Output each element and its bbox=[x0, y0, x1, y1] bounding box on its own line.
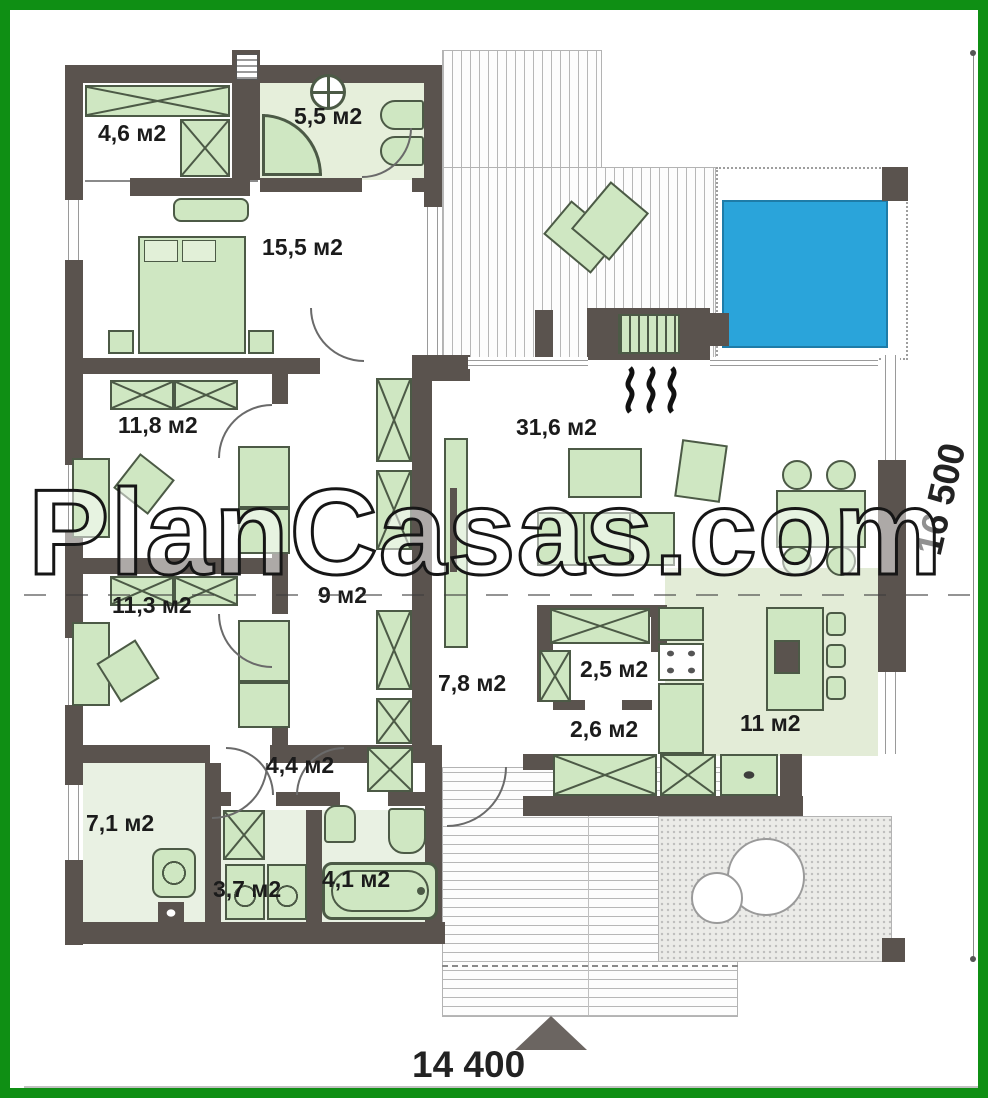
hall-closet bbox=[376, 698, 412, 744]
glazing-terrace bbox=[710, 357, 878, 369]
heat-waves-icon bbox=[620, 366, 682, 414]
kitchen-lower-cabinet bbox=[660, 754, 716, 796]
wall-laundry-east bbox=[306, 810, 322, 922]
window bbox=[424, 207, 442, 355]
bathtub-drain bbox=[417, 887, 425, 895]
nightstand bbox=[108, 330, 134, 354]
dimension-line-horizontal bbox=[24, 1086, 984, 1088]
wall-counter-pier bbox=[780, 754, 802, 796]
pool-pillar bbox=[882, 167, 908, 201]
toilet-icon bbox=[380, 100, 424, 130]
door-arc bbox=[218, 404, 272, 458]
room-label-bedroom-2: 11,8 м2 bbox=[118, 414, 198, 437]
room-label-living-room: 31,6 м2 bbox=[516, 416, 597, 439]
door-arc bbox=[218, 614, 272, 668]
wall-entry-north bbox=[65, 745, 210, 763]
toilet-icon bbox=[388, 808, 426, 854]
window bbox=[65, 785, 83, 860]
wall-corridor-west bbox=[272, 374, 288, 404]
vanity-stool bbox=[173, 198, 249, 222]
wall-bath-top-south bbox=[260, 178, 362, 192]
sink-icon bbox=[324, 805, 356, 843]
stove-icon bbox=[658, 643, 704, 681]
hall-closet bbox=[376, 378, 412, 462]
room-label-kitchen: 11 м2 bbox=[740, 712, 801, 735]
pillow bbox=[182, 240, 216, 262]
room-label-bathroom-bottom: 4,1 м2 bbox=[322, 868, 390, 891]
dimension-end-dot bbox=[970, 956, 976, 962]
window bbox=[882, 355, 900, 460]
glazing-terrace bbox=[468, 357, 588, 369]
patio-pillar bbox=[882, 938, 905, 962]
watermark: PlanCasas.com bbox=[28, 462, 980, 602]
tree-icon bbox=[691, 872, 743, 924]
kitchen-counter bbox=[658, 607, 704, 641]
vent-shaft-icon bbox=[236, 54, 258, 80]
water-heater-icon bbox=[152, 848, 196, 898]
corner-sofa bbox=[238, 682, 290, 728]
entry-closet bbox=[367, 747, 413, 792]
utility-floor bbox=[83, 763, 205, 922]
hall-closet bbox=[376, 610, 412, 690]
wall-corner-connector bbox=[412, 355, 470, 381]
wall-south bbox=[65, 922, 445, 944]
bar-stool bbox=[826, 644, 846, 668]
room-label-entry-hall: 4,4 м2 bbox=[266, 754, 334, 777]
window bbox=[882, 672, 900, 754]
laundry-closet bbox=[223, 810, 265, 860]
wall-topblock-east bbox=[424, 65, 442, 207]
window bbox=[65, 200, 83, 260]
fireplace-icon bbox=[618, 314, 680, 354]
terrace-deck-upper bbox=[442, 50, 602, 168]
terrace-pillar bbox=[535, 310, 553, 357]
room-label-vestibule: 2,6 м2 bbox=[570, 718, 638, 741]
room-label-wardrobe: 4,6 м2 bbox=[98, 122, 166, 145]
kitchen-counter bbox=[658, 683, 704, 754]
room-label-utility: 7,1 м2 bbox=[86, 812, 154, 835]
door-arc bbox=[310, 308, 364, 362]
bar-stool bbox=[826, 676, 846, 700]
wall-kitchen-south bbox=[523, 796, 803, 816]
pillow bbox=[144, 240, 178, 262]
wall-bath-top-south bbox=[412, 178, 424, 192]
pantry-shelf bbox=[550, 608, 650, 644]
wardrobe-closet bbox=[85, 85, 230, 117]
pool-pillar bbox=[707, 313, 729, 346]
kitchen-lower-cabinet bbox=[553, 754, 657, 796]
room-label-bathroom-top: 5,5 м2 bbox=[294, 105, 362, 128]
floor-plan: 4,6 м2 5,5 м2 15,5 м2 11,8 м2 31,6 м2 11… bbox=[0, 0, 988, 1098]
room-label-laundry: 3,7 м2 bbox=[213, 878, 281, 901]
floor-drain-icon bbox=[158, 902, 184, 924]
pantry-shelf bbox=[539, 650, 571, 702]
dimension-width: 14 400 bbox=[412, 1046, 525, 1083]
wall-master-south bbox=[65, 358, 320, 374]
room-label-bedroom-master: 15,5 м2 bbox=[262, 236, 343, 259]
wall-entry-pier bbox=[523, 754, 553, 770]
closet bbox=[174, 380, 238, 410]
closet bbox=[110, 380, 174, 410]
room-label-hallway: 7,8 м2 bbox=[438, 672, 506, 695]
wardrobe-closet bbox=[180, 119, 230, 177]
nightstand bbox=[248, 330, 274, 354]
wall-pantry-south bbox=[622, 700, 652, 710]
bar-stool bbox=[826, 612, 846, 636]
sink-icon bbox=[720, 754, 778, 796]
dimension-end-dot bbox=[970, 50, 976, 56]
room-label-pantry: 2,5 м2 bbox=[580, 658, 648, 681]
island-sink-icon bbox=[774, 640, 800, 674]
dresser bbox=[130, 178, 250, 196]
porch-edge-dashed bbox=[442, 965, 738, 967]
swimming-pool bbox=[722, 200, 888, 348]
entrance-arrow-icon bbox=[515, 1016, 587, 1050]
